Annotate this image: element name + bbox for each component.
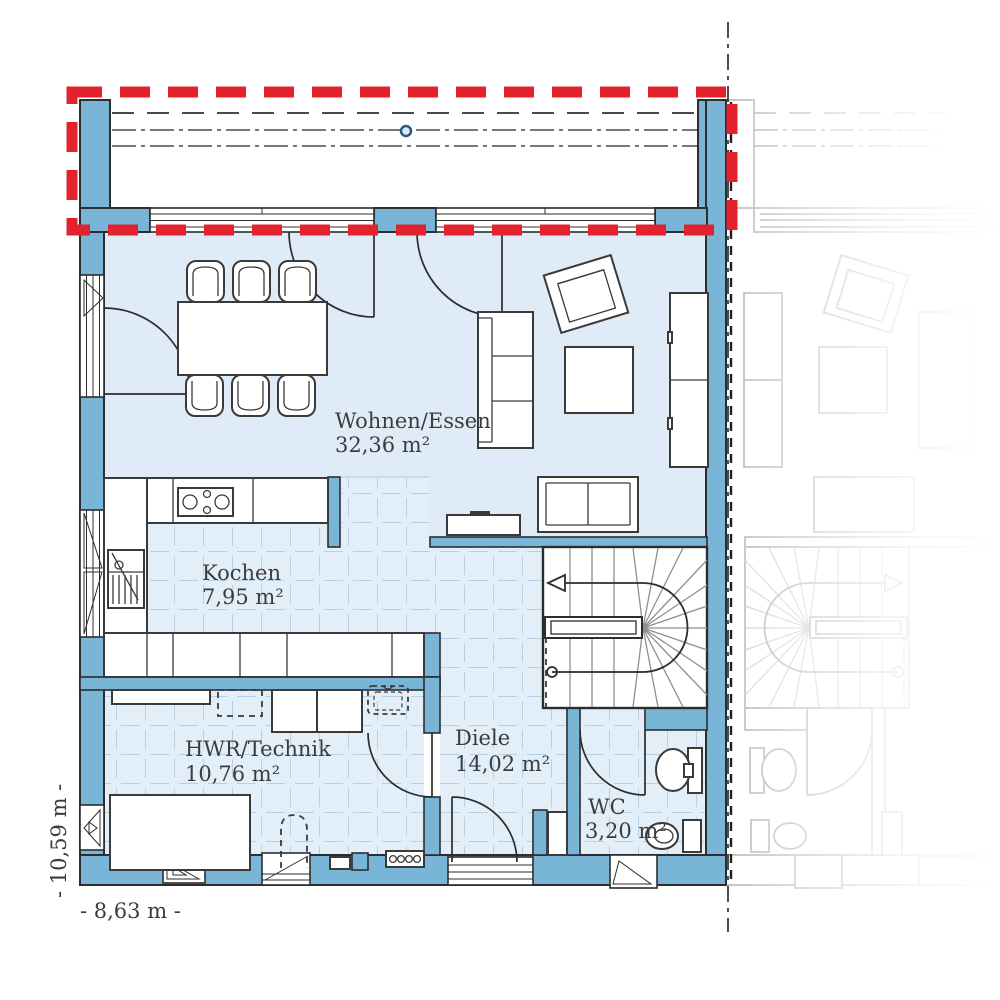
utility-side-vent	[80, 805, 104, 850]
heat-pump-unit	[110, 795, 250, 870]
dimension-depth: - 10,59 m -	[47, 784, 71, 898]
room-area-diele: 14,02 m²	[455, 752, 550, 776]
utility-hall-wall-upper	[424, 677, 440, 733]
room-label-hwr-technik: HWR/Technik	[185, 737, 331, 761]
terrace-pillar-left	[80, 100, 110, 208]
dryer	[317, 690, 362, 732]
entrance-reveal-stub	[533, 810, 547, 855]
party-wall	[706, 100, 726, 885]
living-hall-wall	[430, 537, 707, 547]
toilet-tank	[683, 820, 701, 852]
wc-window	[610, 855, 657, 888]
tap	[684, 764, 693, 777]
dining-chair	[233, 261, 270, 302]
distribution-box	[386, 851, 424, 867]
room-area-wc: 3,20 m²	[585, 819, 667, 843]
terrace	[110, 100, 698, 208]
utility-pier	[352, 853, 368, 870]
meter-box	[330, 857, 350, 869]
dining-chair	[186, 375, 223, 416]
corridor-floor-upper	[340, 477, 430, 547]
utility-hall-wall-lower	[424, 797, 440, 855]
kitchen-divider-stub	[328, 477, 340, 547]
wc-top-wall	[645, 708, 707, 730]
room-area-wohnen-essen: 32,36 m²	[335, 433, 430, 457]
sofa-horizontal	[538, 477, 638, 532]
island-wall-stub	[424, 633, 440, 677]
cabinet-handle	[668, 332, 672, 343]
kitchen-window	[80, 510, 104, 637]
cabinet-handle	[668, 418, 672, 429]
floor-plan-page: Wohnen/Essen 32,36 m² Kochen 7,95 m² HWR…	[0, 0, 1000, 1000]
drain-icon	[401, 126, 411, 136]
entrance-door-sill	[448, 857, 533, 885]
room-label-diele: Diele	[455, 726, 510, 750]
dining-table	[178, 302, 327, 375]
dining-chair	[278, 375, 315, 416]
wc-left-wall	[567, 708, 580, 855]
dining-chair	[232, 375, 269, 416]
dining-chair	[279, 261, 316, 302]
utility-bottom-window	[262, 853, 310, 885]
dimension-width: - 8,63 m -	[80, 899, 181, 923]
room-label-wc: WC	[588, 795, 626, 819]
staircase	[543, 547, 707, 708]
coffee-table	[565, 347, 633, 413]
kitchen-counter-island	[104, 633, 424, 677]
kitchen-sink	[108, 550, 144, 608]
dining-french-window	[80, 275, 104, 397]
tv-lowboard	[447, 511, 520, 535]
room-label-wohnen-essen: Wohnen/Essen	[335, 409, 491, 433]
washer	[272, 690, 317, 732]
shelf	[112, 690, 210, 704]
room-area-hwr-technik: 10,76 m²	[185, 762, 280, 786]
floor-plan: Wohnen/Essen 32,36 m² Kochen 7,95 m² HWR…	[0, 0, 1000, 1000]
hall-wardrobe	[548, 812, 567, 855]
dining-chair	[187, 261, 224, 302]
tall-cabinet	[668, 293, 708, 467]
cooktop	[178, 488, 233, 516]
fade-overlay	[726, 0, 1000, 1000]
room-label-kochen: Kochen	[202, 561, 281, 585]
room-area-kochen: 7,95 m²	[202, 585, 284, 609]
